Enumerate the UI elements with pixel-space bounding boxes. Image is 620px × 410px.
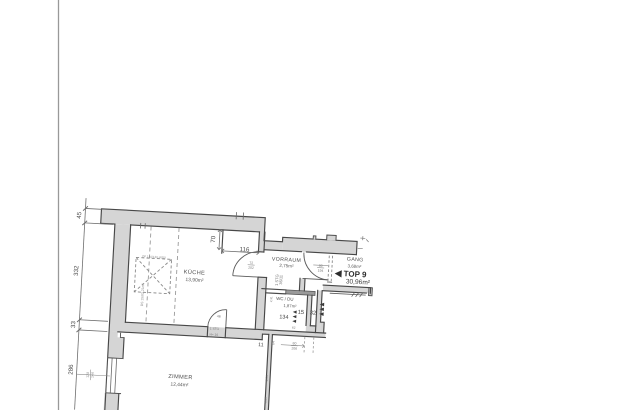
svg-text:80: 80 <box>319 264 323 268</box>
svg-text:KÜCHE: KÜCHE <box>184 269 206 277</box>
svg-text:202: 202 <box>248 266 254 270</box>
svg-text:11: 11 <box>258 342 264 348</box>
svg-text:134: 134 <box>279 314 288 320</box>
svg-text:80: 80 <box>293 341 297 345</box>
svg-text:45: 45 <box>76 211 83 219</box>
svg-text:2,66: 2,66 <box>265 375 269 382</box>
svg-text:2,31: 2,31 <box>269 296 273 302</box>
svg-text:H= 16: H= 16 <box>209 332 218 336</box>
svg-text:30,96m²: 30,96m² <box>346 278 371 286</box>
svg-text:3,68m²: 3,68m² <box>348 263 362 269</box>
svg-text:332: 332 <box>73 265 81 276</box>
svg-text:36/11: 36/11 <box>278 274 284 285</box>
svg-text:32: 32 <box>310 310 317 316</box>
svg-text:206: 206 <box>291 346 297 350</box>
svg-text:12,44m²: 12,44m² <box>170 382 189 389</box>
svg-text:GANG: GANG <box>347 257 364 264</box>
svg-text:46: 46 <box>217 314 221 318</box>
svg-text:13,90m²: 13,90m² <box>185 277 204 284</box>
svg-text:62: 62 <box>292 325 296 329</box>
svg-text:15: 15 <box>297 310 304 316</box>
svg-text:194: 194 <box>318 269 324 273</box>
svg-text:70: 70 <box>210 235 217 243</box>
svg-text:1 STG: 1 STG <box>210 327 220 332</box>
svg-text:64: 64 <box>271 341 275 345</box>
svg-text:72: 72 <box>249 261 253 265</box>
svg-text:1,87m²: 1,87m² <box>283 303 297 309</box>
svg-text:2,75m²: 2,75m² <box>279 263 294 269</box>
svg-text:286: 286 <box>67 364 75 375</box>
svg-text:4,09: 4,09 <box>264 397 268 404</box>
svg-text:WC / DU: WC / DU <box>276 296 294 302</box>
svg-text:33: 33 <box>70 320 77 328</box>
svg-text:116: 116 <box>239 246 250 254</box>
